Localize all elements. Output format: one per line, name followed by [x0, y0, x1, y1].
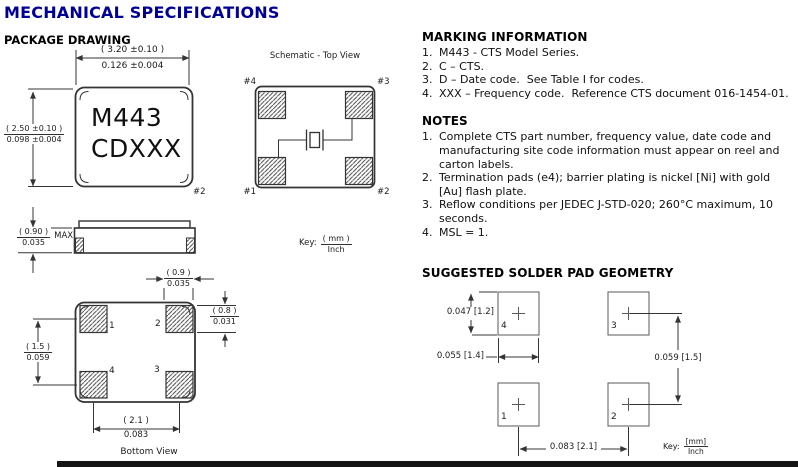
solder-key: Key: [mm] Inch — [663, 437, 709, 456]
bottomview-pad1-number: 1 — [109, 321, 115, 331]
note-line: MSL = 1. — [439, 226, 488, 240]
datasheet-page: MECHANICAL SPECIFICATIONS PACKAGE DRAWIN… — [0, 0, 798, 467]
schematic-pin1-label: #1 — [240, 188, 256, 198]
bottomview-pad3-number: 3 — [154, 365, 160, 375]
note-line: carton labels. — [439, 158, 779, 172]
schematic-pin3-label: #3 — [377, 78, 390, 88]
dim-row-pitch-in: 0.059 — [24, 353, 52, 363]
schematic-pin2-label: #2 — [377, 188, 390, 198]
solder-pad1-number: 1 — [501, 412, 507, 422]
note-line: Reflow conditions per JEDEC J-STD-020; 2… — [439, 198, 773, 212]
schematic-key-label: Key: — [299, 239, 317, 249]
dim-pad-width-mm: ( 0.9 ) — [164, 268, 192, 279]
marking-item-text: D – Date code. See Table I for codes. — [439, 73, 644, 86]
note-item: 3. Reflow conditions per JEDEC J-STD-020… — [422, 198, 794, 225]
solder-key-inch: Inch — [684, 447, 708, 456]
topview-pin2-label: #2 — [193, 188, 206, 198]
solder-key-label: Key: — [663, 442, 680, 451]
dim-col-pitch-mm: ( 2.1 ) — [93, 417, 179, 427]
dim-pad-width-in: 0.035 — [164, 279, 192, 289]
note-item-number: 4. — [422, 226, 439, 240]
note-line: Termination pads (e4); barrier plating i… — [439, 171, 770, 185]
marking-information-heading: MARKING INFORMATION — [422, 31, 794, 44]
dim-topview-width-mm: ( 3.20 ±0.10 ) — [76, 45, 189, 55]
solder-pad-heading: SUGGESTED SOLDER PAD GEOMETRY — [422, 266, 673, 280]
dim-pad-height: ( 0.8 ) 0.031 — [208, 306, 241, 327]
schematic-key: Key: ( mm ) Inch — [299, 234, 353, 254]
marking-information-section: MARKING INFORMATION 1. M443 - CTS Model … — [422, 31, 794, 100]
marking-item-number: 4. — [422, 87, 439, 100]
solder-dim-pad-width: 0.055 [1.4] — [436, 352, 484, 362]
package-bottom-view-outline — [33, 291, 236, 433]
bottom-view-label: Bottom View — [108, 447, 190, 457]
solder-pad3-number: 3 — [611, 321, 617, 331]
note-item: 1. Complete CTS part number, frequency v… — [422, 130, 794, 171]
marking-item-text: XXX – Frequency code. Reference CTS docu… — [439, 87, 789, 100]
note-line: Complete CTS part number, frequency valu… — [439, 130, 779, 144]
dim-topview-height-in: 0.098 ±0.004 — [4, 135, 64, 145]
note-item: 2. Termination pads (e4); barrier platin… — [422, 171, 794, 198]
marking-item: 2. C – CTS. — [422, 60, 794, 73]
note-item-text: Termination pads (e4); barrier plating i… — [439, 171, 770, 198]
note-item-text: Complete CTS part number, frequency valu… — [439, 130, 779, 171]
marking-item-text: M443 - CTS Model Series. — [439, 46, 579, 59]
solder-dim-col-pitch: 0.083 [2.1] — [548, 443, 599, 453]
note-item-text: MSL = 1. — [439, 226, 488, 240]
dim-row-pitch-mm: ( 1.5 ) — [24, 342, 52, 353]
marking-item-text: C – CTS. — [439, 60, 484, 73]
page-title: MECHANICAL SPECIFICATIONS — [4, 3, 280, 22]
solder-pad2-number: 2 — [611, 412, 617, 422]
chip-marking-line2: CDXXX — [91, 133, 182, 164]
marking-item: 3. D – Date code. See Table I for codes. — [422, 73, 794, 86]
chip-marking-line1: M443 — [91, 102, 182, 133]
solder-pad4-number: 4 — [501, 321, 507, 331]
chip-marking: M443 CDXXX — [91, 102, 182, 164]
dim-sideview-qualifier: MAX — [54, 232, 73, 242]
bottomview-pad2-number: 2 — [155, 319, 161, 329]
dim-pad-height-mm: ( 0.8 ) — [210, 306, 238, 317]
schematic-key-mm: ( mm ) — [321, 234, 352, 245]
notes-section: NOTES 1. Complete CTS part number, frequ… — [422, 115, 794, 239]
dim-topview-width-in: 0.126 ±0.004 — [76, 61, 189, 71]
solder-dim-pad-height: 0.047 [1.2] — [446, 308, 494, 318]
note-item-text: Reflow conditions per JEDEC J-STD-020; 2… — [439, 198, 773, 225]
dim-col-pitch-in: 0.083 — [93, 431, 179, 441]
crystal-symbol — [310, 133, 320, 148]
marking-item: 4. XXX – Frequency code. Reference CTS d… — [422, 87, 794, 100]
schematic-title: Schematic - Top View — [258, 52, 372, 62]
page-bottom-edge — [57, 461, 798, 467]
note-item-number: 1. — [422, 130, 439, 171]
marking-item: 1. M443 - CTS Model Series. — [422, 46, 794, 59]
note-line: manufacturing site code information must… — [439, 144, 779, 158]
bottomview-pad4-number: 4 — [109, 366, 115, 376]
note-line: seconds. — [439, 212, 773, 226]
note-item-number: 2. — [422, 171, 439, 198]
note-item: 4. MSL = 1. — [422, 226, 794, 240]
dim-pad-width: ( 0.9 ) 0.035 — [162, 268, 195, 289]
schematic-pin4-label: #4 — [240, 78, 256, 88]
solder-key-mm: [mm] — [684, 437, 708, 447]
solder-dim-row-pitch: 0.059 [1.5] — [654, 354, 702, 364]
dim-topview-height: ( 2.50 ±0.10 ) 0.098 ±0.004 — [3, 124, 65, 145]
dim-pad-height-in: 0.031 — [210, 317, 238, 327]
marking-item-number: 2. — [422, 60, 439, 73]
marking-item-number: 3. — [422, 73, 439, 86]
solder-pad-geometry-linework — [471, 292, 682, 456]
dim-sideview-height: ( 0.90 ) 0.035 MAX — [16, 227, 73, 247]
notes-heading: NOTES — [422, 115, 794, 128]
dim-row-pitch: ( 1.5 ) 0.059 — [21, 342, 55, 363]
note-line: [Au] flash plate. — [439, 185, 770, 199]
schematic-outline — [256, 87, 375, 188]
dim-topview-height-mm: ( 2.50 ±0.10 ) — [4, 124, 64, 135]
dim-sideview-height-in: 0.035 — [17, 238, 50, 248]
dim-sideview-height-mm: ( 0.90 ) — [17, 227, 50, 238]
schematic-key-inch: Inch — [321, 245, 352, 255]
note-item-number: 3. — [422, 198, 439, 225]
marking-item-number: 1. — [422, 46, 439, 59]
